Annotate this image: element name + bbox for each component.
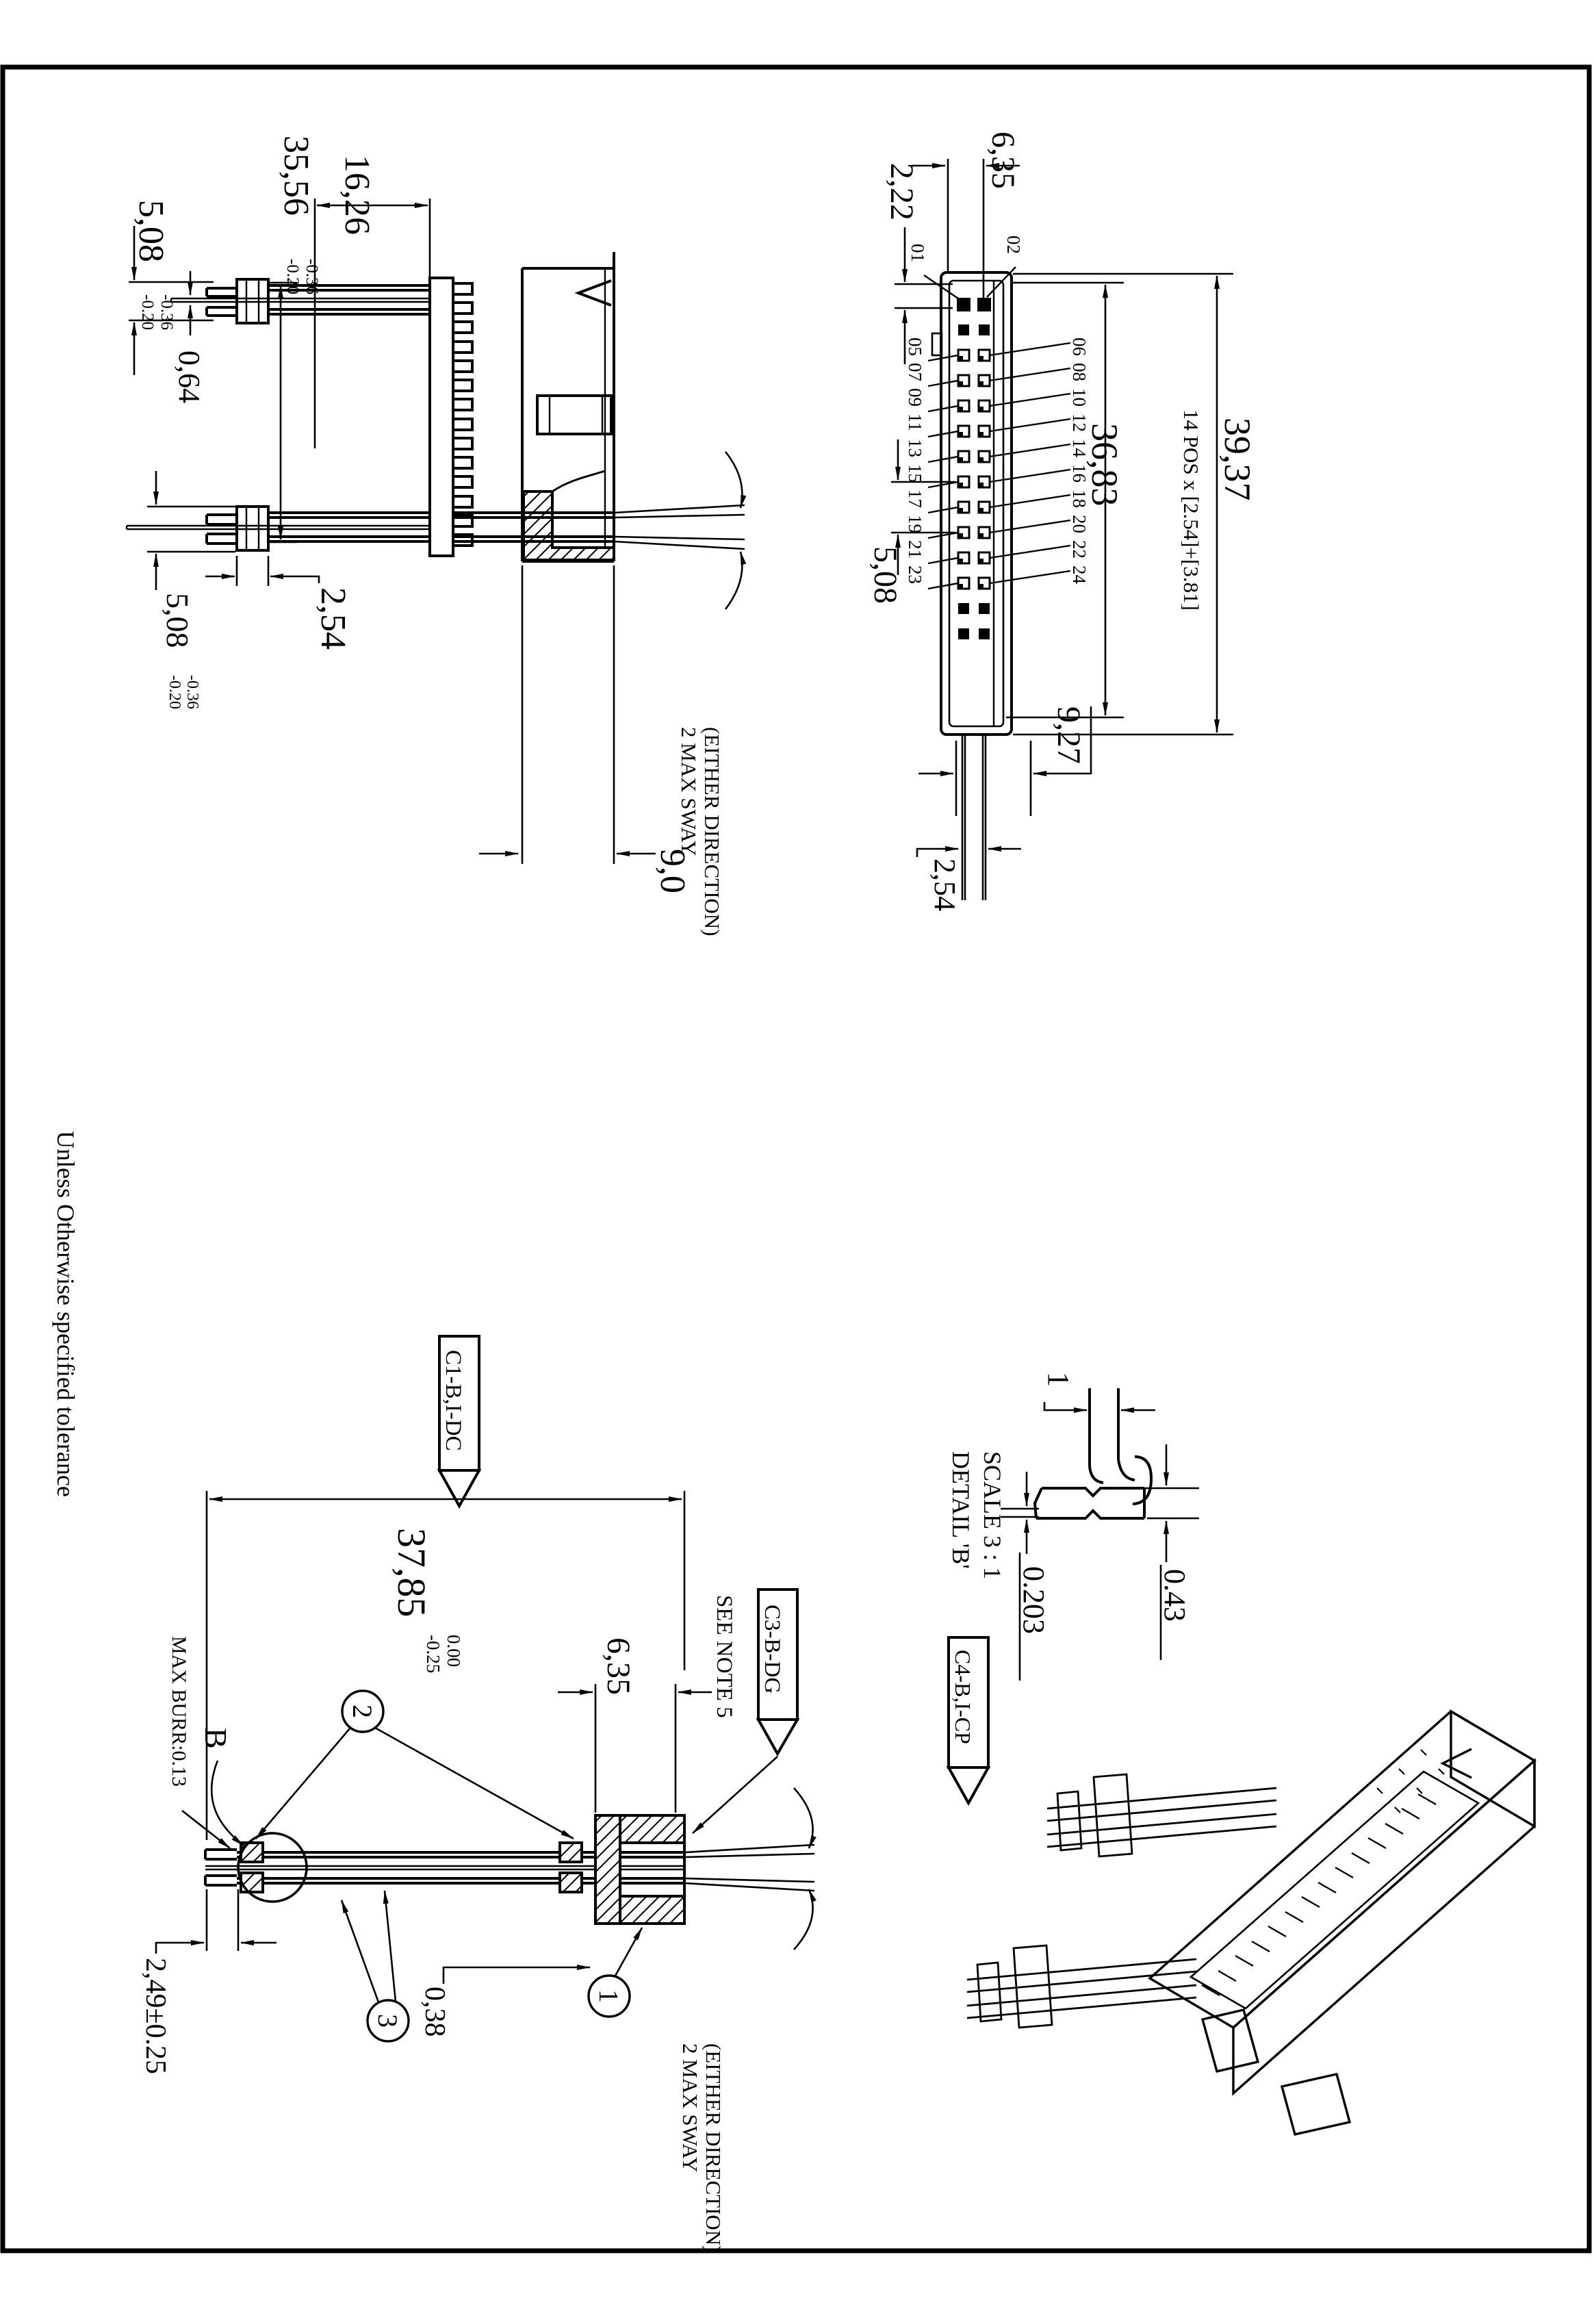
dim-pin-height-tol-lower: -0.20 (138, 294, 157, 330)
dim-pitch: 2,54 (928, 858, 962, 911)
dim-pin-height: 5,08 (131, 200, 170, 262)
dim-edge-label: 0.203 (1017, 1566, 1051, 1634)
position-note: 14 POS x [2.54]+[3.81] (1179, 409, 1203, 611)
dim-width-label: 1 (1042, 1372, 1075, 1387)
note-see-note5: SEE NOTE 5 (712, 1595, 736, 1718)
dim-shroud-length: 16,26 (337, 155, 376, 235)
sway-note-line1: 2 MAX SWAY (677, 727, 701, 856)
dim-pitch-double: 5,08 (867, 546, 903, 604)
pin-label: 19 (905, 515, 925, 533)
dim-body-span-tol-lower: -0.20 (283, 259, 302, 294)
dim-tail: 5,08 (160, 593, 195, 648)
pin-label: 01 (908, 244, 928, 262)
flag-c4-label: C4-B,I-CP (951, 1650, 975, 1744)
balloon-3-label: 3 (372, 2014, 403, 2028)
dim-overall-tol-upper: 0.00 (444, 1635, 464, 1667)
pin-label: 22 (1069, 540, 1090, 559)
pin-label: 21 (905, 540, 925, 559)
dim-tail-tol-lower: -0.20 (166, 675, 183, 709)
pin-label: 23 (905, 565, 925, 584)
dim-top-offset: 6,35 (985, 131, 1021, 189)
dim-span-inner: 36,83 (1084, 423, 1125, 507)
dim-row-offset: 2,22 (884, 163, 920, 220)
dim-end-offset: 9,27 (1051, 706, 1087, 764)
detail-title: DETAIL 'B' (947, 1451, 975, 1569)
pin-label: 10 (1069, 388, 1090, 407)
pin-label: 24 (1069, 565, 1090, 585)
pin-label: 06 (1069, 337, 1090, 356)
dim-span-outer: 39,37 (1217, 418, 1258, 501)
dim-pin-thickness: 0,64 (172, 350, 206, 403)
pin-label: 17 (905, 489, 925, 508)
dim-tip-pitch: 2,54 (313, 587, 352, 650)
dim-tip-height: 2,49±0.25 (140, 1958, 171, 2074)
pin-label: 13 (905, 439, 925, 457)
dim-shroud-depth: 6,35 (600, 1637, 637, 1695)
pin-label: 02 (1003, 235, 1024, 254)
pin-label: 08 (1069, 363, 1090, 381)
pin-label: 05 (905, 337, 925, 356)
sway-note-line1: 2 MAX SWAY (678, 2043, 702, 2172)
pin-label: 11 (905, 413, 925, 431)
sway-note-line2: (EITHER DIRECTION) (702, 2043, 725, 2253)
pin-label: 09 (905, 388, 925, 407)
flag-c1-label: C1-B,I-DC (441, 1350, 465, 1451)
dim-body-span: 35,56 (277, 136, 316, 216)
margin-tolerance-note: Unless Otherwise specified tolerance (52, 1131, 79, 1497)
dim-pin-height-tol-upper: -0.36 (157, 294, 176, 330)
dim-overall: 37,85 (389, 1528, 434, 1618)
sway-note-line2: (EITHER DIRECTION) (700, 727, 724, 936)
dim-wall: 0,38 (419, 1987, 450, 2037)
detail-b-mark: B (198, 1728, 233, 1749)
pin-label: 15 (905, 464, 925, 483)
detail-scale: SCALE 3 : 1 (979, 1451, 1006, 1579)
dim-tail-tol-upper: -0.36 (183, 675, 201, 709)
engineering-drawing-canvas: Unless Otherwise specified tolerance (0, 0, 1594, 2324)
pin-label: 07 (905, 363, 925, 381)
drawing-sheet: Unless Otherwise specified tolerance (0, 0, 1594, 2324)
dim-overall-tol-lower: -0.25 (423, 1635, 444, 1673)
balloon-1-label: 1 (593, 1989, 624, 2003)
dim-thickness-label: 0.43 (1158, 1569, 1192, 1622)
note-max-burr: MAX BURR:0.13 (168, 1636, 190, 1787)
balloon-2-label: 2 (347, 1704, 378, 1718)
pin-label: 20 (1069, 515, 1090, 533)
dim-body-span-tol-upper: -0.36 (303, 259, 321, 294)
flag-c3-label: C3-B-DG (760, 1605, 784, 1694)
